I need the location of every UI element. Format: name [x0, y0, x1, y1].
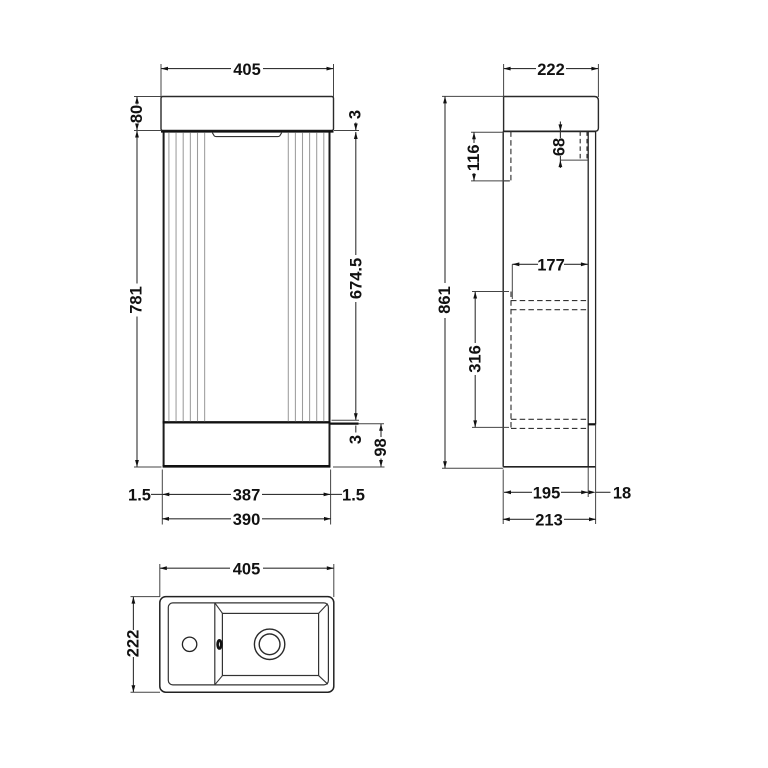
svg-text:316: 316 [467, 345, 485, 373]
svg-text:213: 213 [535, 511, 563, 529]
svg-text:195: 195 [533, 484, 561, 502]
svg-text:405: 405 [233, 560, 261, 578]
svg-text:98: 98 [372, 438, 390, 456]
svg-text:3: 3 [347, 110, 365, 119]
svg-text:18: 18 [613, 484, 631, 502]
svg-text:222: 222 [124, 630, 142, 658]
svg-text:405: 405 [233, 61, 261, 79]
svg-text:80: 80 [128, 105, 146, 123]
svg-text:177: 177 [537, 256, 565, 274]
svg-text:674.5: 674.5 [348, 258, 366, 299]
svg-text:116: 116 [465, 144, 483, 171]
svg-text:1.5: 1.5 [342, 487, 365, 505]
svg-text:387: 387 [233, 487, 261, 505]
svg-text:861: 861 [436, 286, 454, 314]
svg-text:68: 68 [551, 138, 569, 156]
svg-text:222: 222 [537, 61, 565, 79]
svg-text:781: 781 [128, 286, 146, 314]
svg-text:1.5: 1.5 [128, 487, 151, 505]
svg-text:390: 390 [233, 511, 261, 529]
svg-text:3: 3 [347, 435, 365, 444]
